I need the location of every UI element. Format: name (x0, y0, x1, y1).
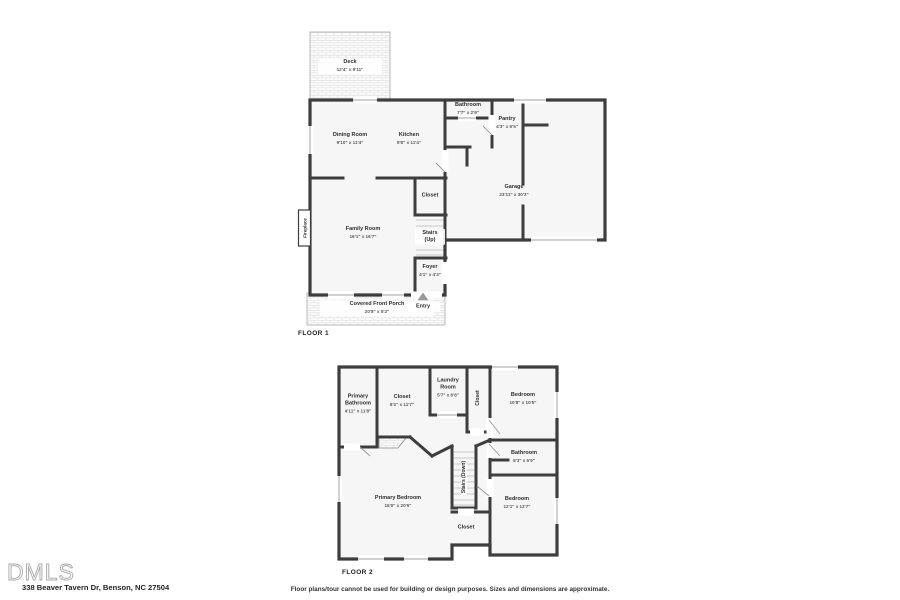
room-name: Closet (410, 192, 450, 199)
room-name: Bedroom (498, 392, 548, 399)
room-dims: 5'7" x 6'8" (431, 392, 465, 398)
floor2-label: FLOOR 2 (342, 569, 373, 576)
room-label-bathroom-f2: Bathroom 8'3" x 5'9" (499, 450, 549, 464)
room-label-entry: Entry (406, 302, 440, 311)
room-name: Pantry (487, 116, 527, 123)
room-dims: 23'11" x 30'3" (484, 192, 544, 198)
room-name: Laundry Room (431, 378, 465, 392)
room-dims: 8'3" x 5'9" (499, 458, 549, 464)
room-label-stairs-up: Stairs (Up) (415, 229, 445, 245)
room-name: Bedroom (492, 496, 542, 503)
floor-plan-drawing: DMLS (0, 0, 900, 600)
room-dims: 10'8" x 10'5" (498, 400, 548, 406)
room-name: Primary Bathroom (337, 394, 379, 408)
room-dims: 4'1" x 4'3" (410, 272, 450, 278)
room-label-deck: Deck 12'4" x 9'11" (318, 58, 382, 74)
room-name: Foyer (410, 264, 450, 271)
room-label-foyer: Foyer 4'1" x 4'3" (410, 264, 450, 278)
room-name: Bathroom (445, 102, 491, 109)
room-name: Bathroom (499, 450, 549, 457)
room-name: Entry (408, 303, 438, 310)
room-dims: 4'11" x 11'8" (337, 408, 379, 414)
room-label-fireplace: Fireplace (303, 218, 308, 238)
floor1-footprint (310, 100, 605, 295)
room-label-laundry-room: Laundry Room 5'7" x 6'8" (431, 378, 465, 399)
room-label-closet-f1: Closet (410, 192, 450, 199)
room-label-kitchen: Kitchen 9'8" x 11'4" (384, 132, 434, 146)
room-name: Garage (484, 184, 544, 191)
floor-plan-page: DMLS Deck 12'4" x 9'11" Dining Room 9'10… (0, 0, 900, 600)
floor1-plan (299, 32, 606, 325)
room-label-closet-large: Closet 8'2" x 11'7" (380, 394, 424, 408)
room-name: Closet (446, 524, 486, 531)
room-label-primary-bathroom: Primary Bathroom 4'11" x 11'8" (337, 394, 379, 415)
room-label-stairs-down: Stairs (Down) (461, 459, 467, 495)
room-label-bathroom-f1: Bathroom 7'7" x 2'9" (445, 102, 491, 116)
room-name: Primary Bedroom (358, 495, 438, 502)
room-dims: 16'0" x 20'5" (358, 503, 438, 509)
room-label-garage: Garage 23'11" x 30'3" (484, 184, 544, 198)
room-dims: 7'7" x 2'9" (445, 110, 491, 116)
room-name: Stairs (Up) (417, 230, 443, 244)
room-name: Family Room (328, 226, 398, 233)
room-label-pantry: Pantry 4'3" x 6'5" (487, 116, 527, 130)
room-name: Kitchen (384, 132, 434, 139)
room-dims: 9'8" x 11'4" (384, 140, 434, 146)
room-label-bedroom-bottom: Bedroom 12'1" x 12'7" (492, 496, 542, 510)
dmls-logo: DMLS (7, 559, 75, 585)
room-dims: 4'3" x 6'5" (487, 124, 527, 130)
room-dims: 8'2" x 11'7" (380, 402, 424, 408)
room-label-primary-bedroom: Primary Bedroom 16'0" x 20'5" (358, 495, 438, 509)
room-label-bedroom-top: Bedroom 10'8" x 10'5" (498, 392, 548, 406)
room-label-closet-bottom: Closet (446, 524, 486, 531)
room-label-closet-hall: Closet (475, 390, 481, 405)
room-name: Deck (320, 59, 380, 66)
room-dims: 12'4" x 9'11" (320, 67, 380, 73)
room-dims: 9'10" x 11'4" (320, 140, 380, 146)
room-name: Dining Room (320, 132, 380, 139)
room-dims: 12'1" x 12'7" (492, 504, 542, 510)
room-dims: 16'1" x 16'7" (328, 234, 398, 240)
room-name: Closet (380, 394, 424, 401)
floor1-label: FLOOR 1 (298, 330, 329, 337)
disclaimer-text: Floor plans/tour cannot be used for buil… (0, 586, 900, 593)
room-label-dining-room: Dining Room 9'10" x 11'4" (320, 132, 380, 146)
room-label-family-room: Family Room 16'1" x 16'7" (328, 226, 398, 240)
dmls-logo-text: DMLS (7, 559, 75, 585)
